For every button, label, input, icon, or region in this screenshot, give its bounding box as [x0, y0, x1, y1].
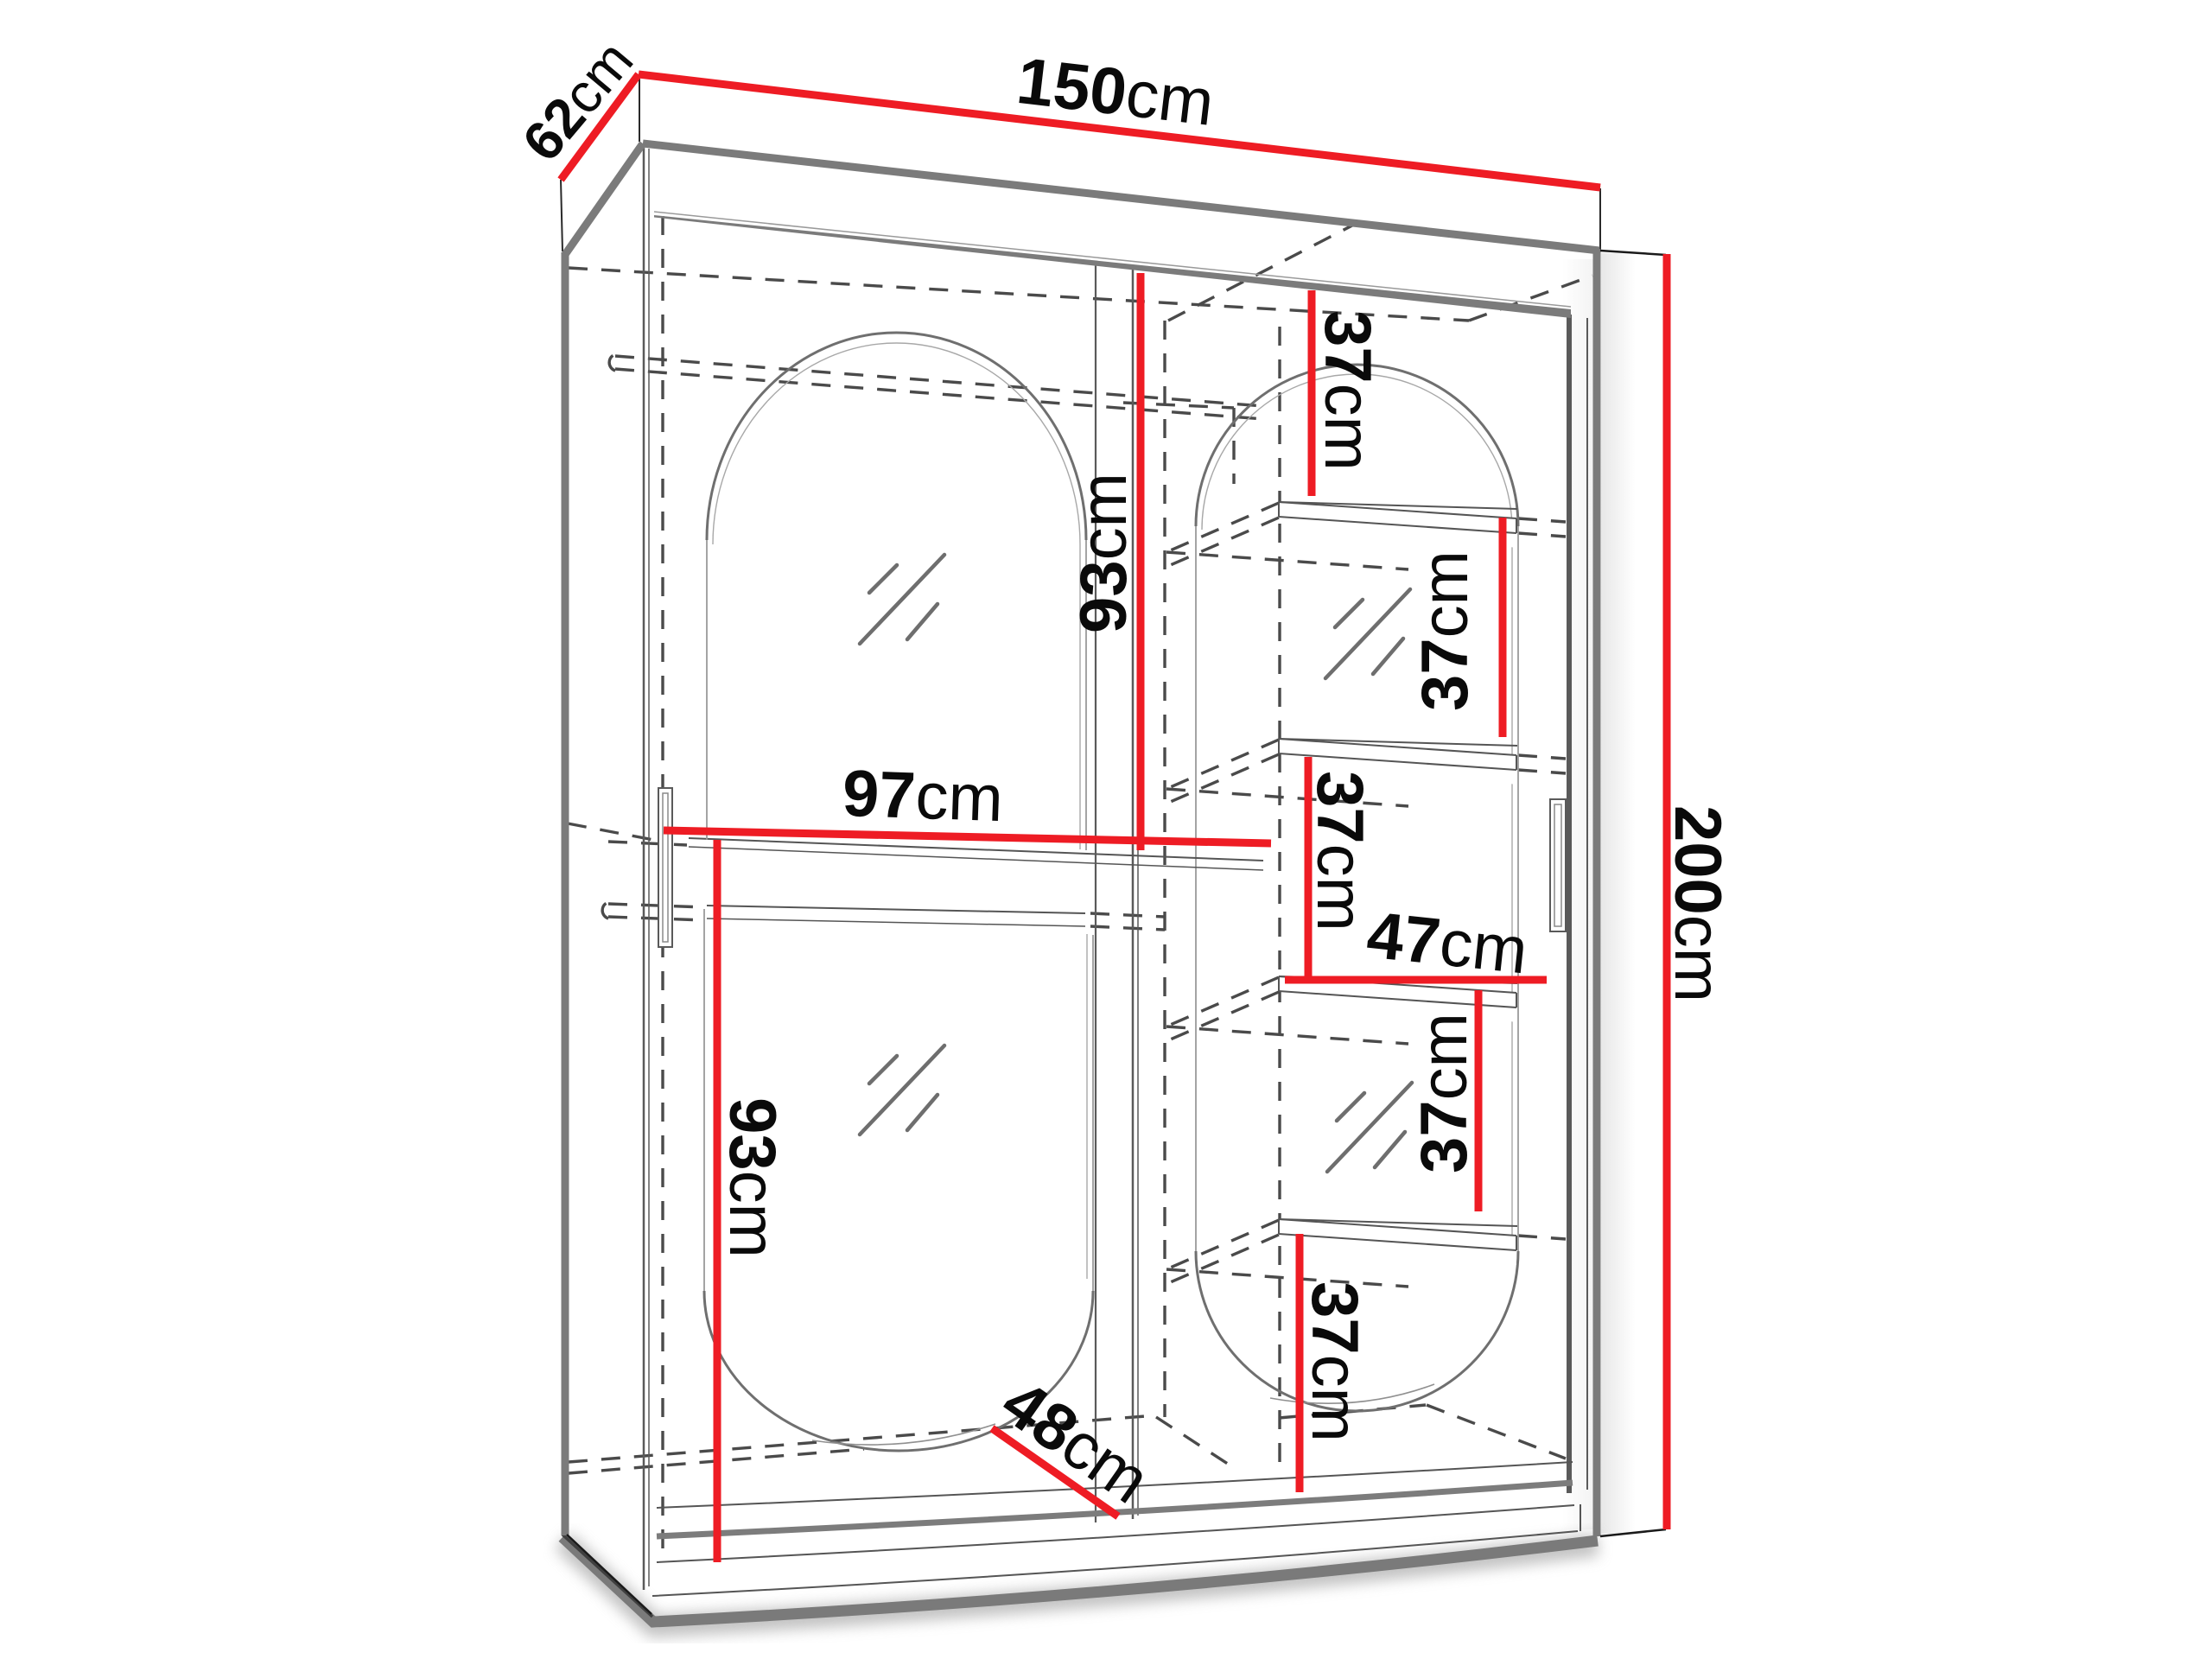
svg-text:200cm: 200cm: [1661, 805, 1734, 1002]
svg-text:93cm: 93cm: [715, 1097, 789, 1258]
svg-text:97cm: 97cm: [842, 757, 1005, 836]
svg-text:93cm: 93cm: [1067, 473, 1141, 633]
svg-text:37cm: 37cm: [1408, 550, 1482, 711]
svg-text:37cm: 37cm: [1408, 1013, 1481, 1173]
svg-text:37cm: 37cm: [1298, 1281, 1371, 1442]
svg-text:37cm: 37cm: [1303, 771, 1376, 931]
svg-text:37cm: 37cm: [1311, 310, 1384, 471]
